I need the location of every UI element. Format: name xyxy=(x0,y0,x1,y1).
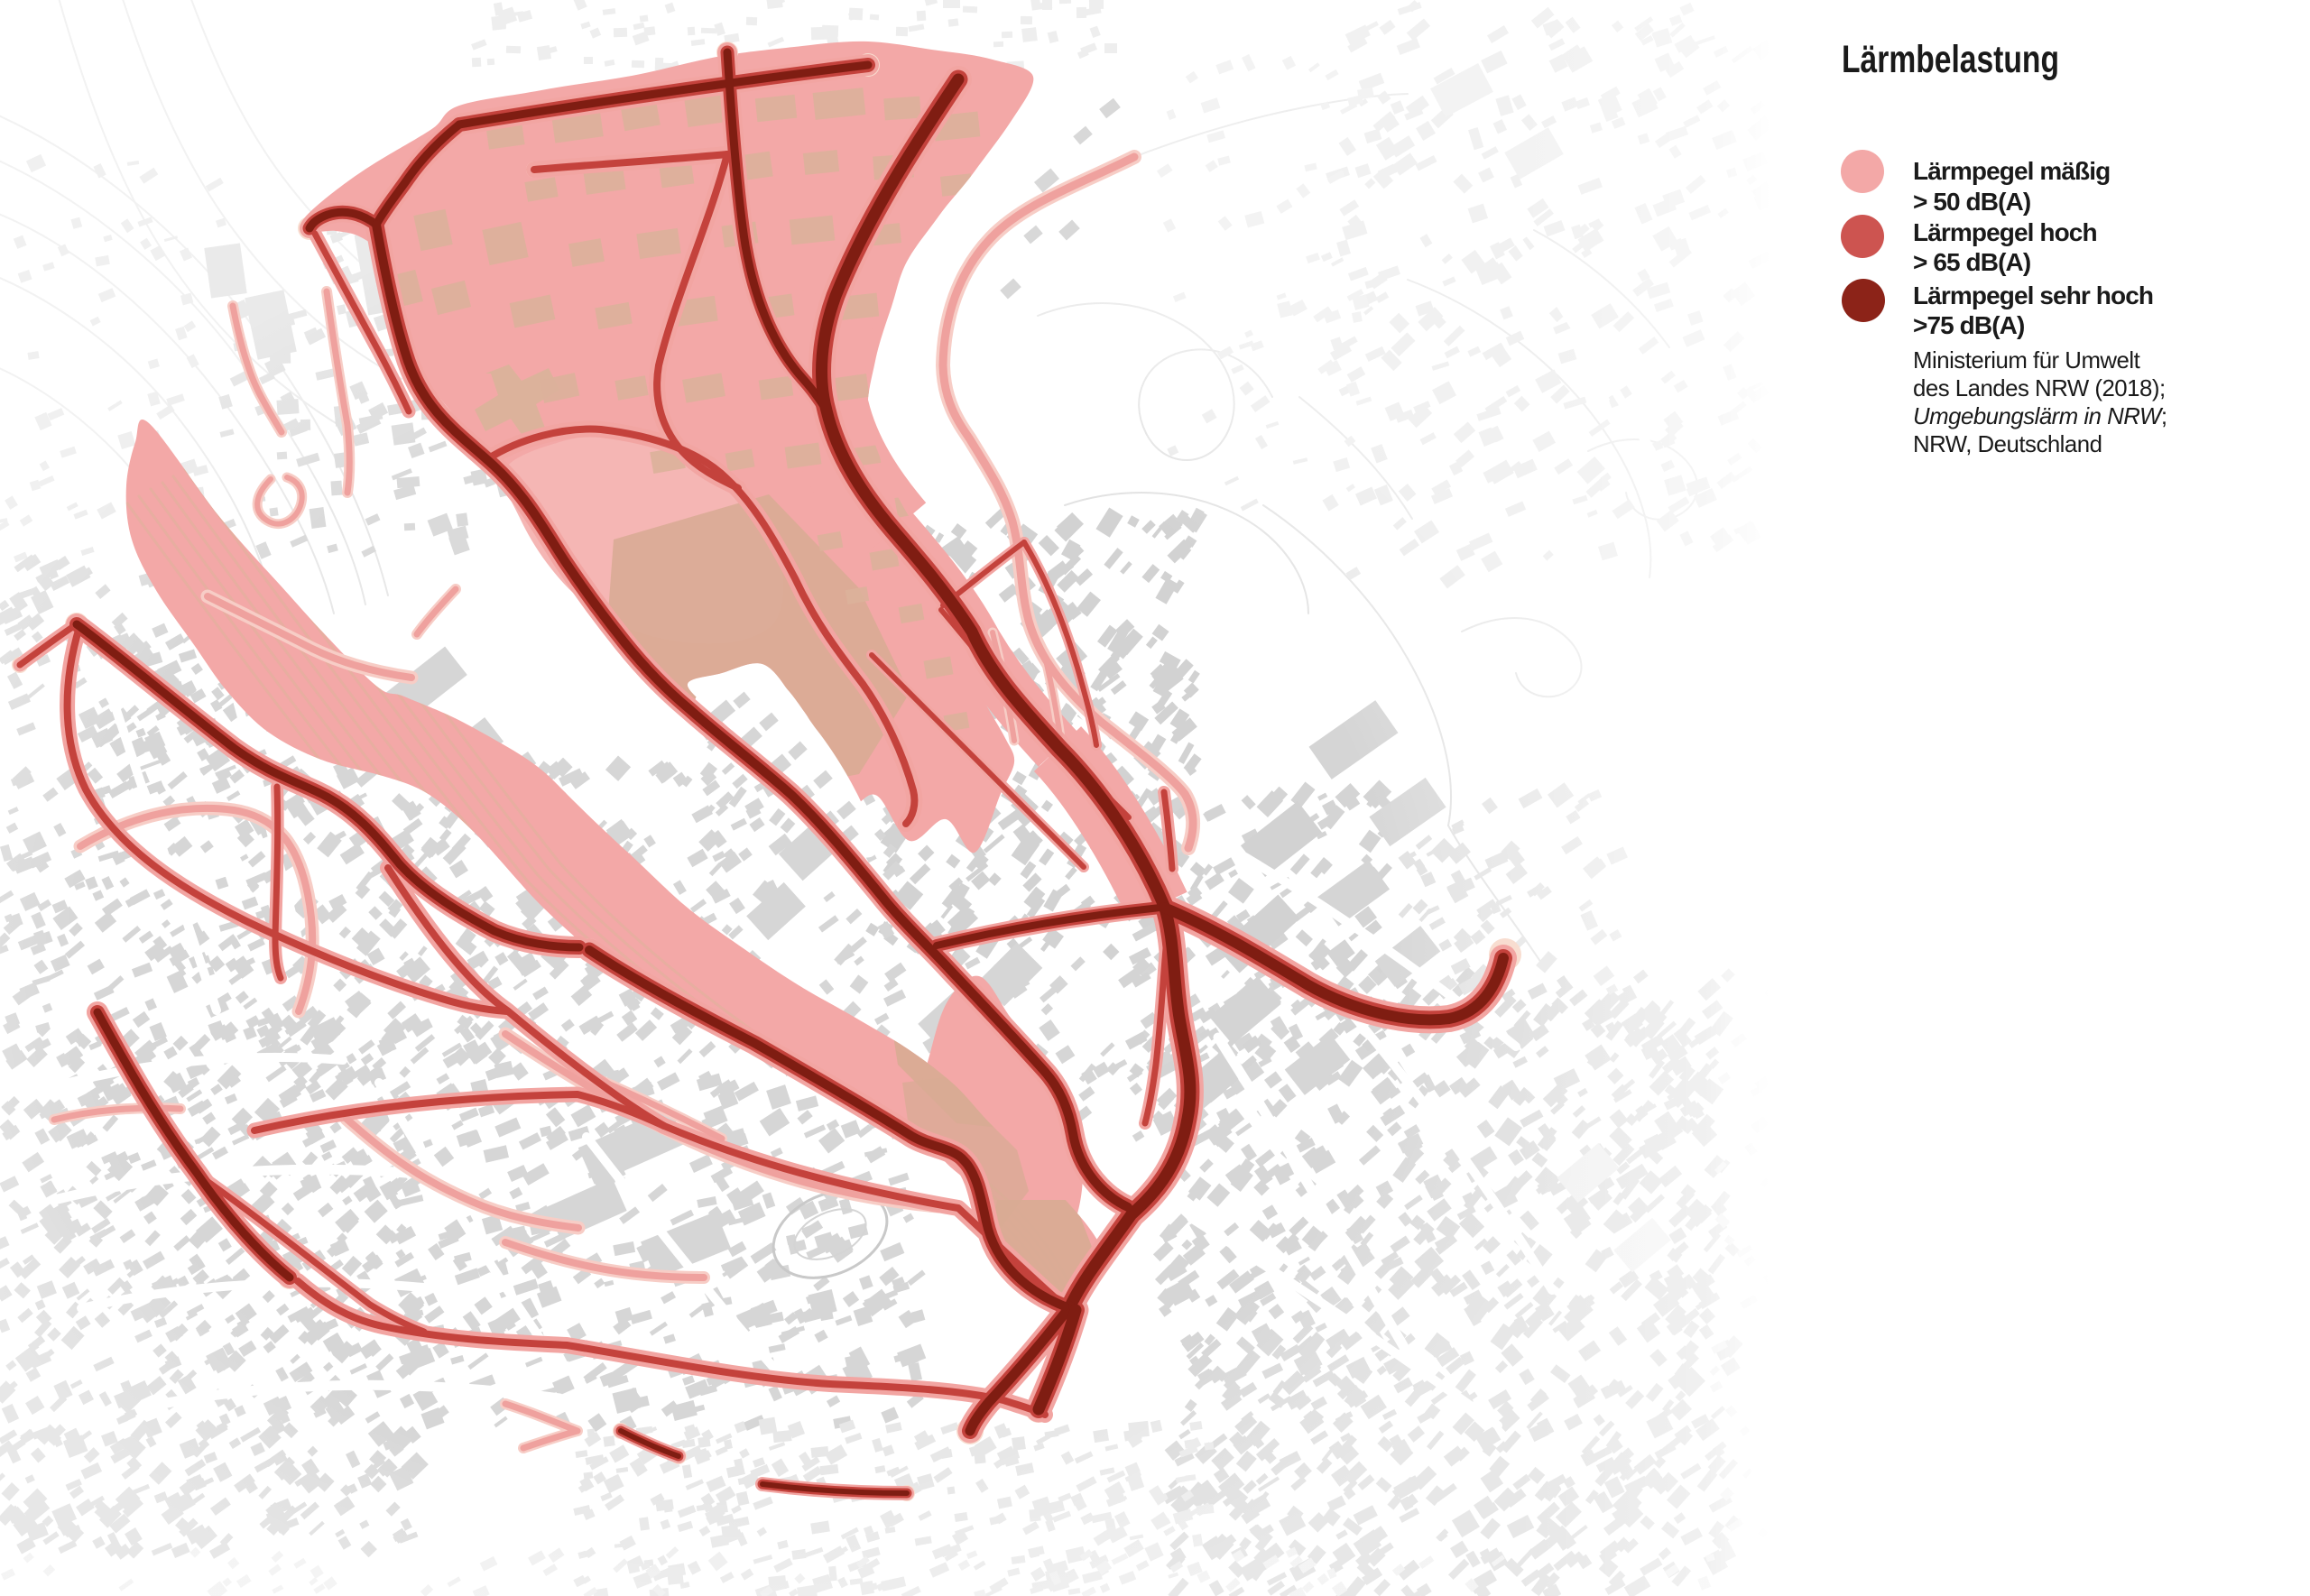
svg-text:NRW, Deutschland: NRW, Deutschland xyxy=(1913,432,2102,457)
svg-text:Lärmpegel mäßig: Lärmpegel mäßig xyxy=(1913,157,2110,185)
svg-text:Lärmpegel hoch: Lärmpegel hoch xyxy=(1913,218,2097,246)
svg-text:des Landes NRW (2018);: des Landes NRW (2018); xyxy=(1913,376,2166,401)
svg-text:Lärmpegel sehr hoch: Lärmpegel sehr hoch xyxy=(1913,281,2153,309)
svg-text:Lärmbelastung: Lärmbelastung xyxy=(1842,38,2059,81)
svg-text:> 65 dB(A): > 65 dB(A) xyxy=(1913,248,2030,276)
svg-text:Umgebungslärm in NRW;: Umgebungslärm in NRW; xyxy=(1913,404,2167,429)
svg-text:> 50 dB(A): > 50 dB(A) xyxy=(1913,188,2030,216)
svg-text:Ministerium für Umwelt: Ministerium für Umwelt xyxy=(1913,348,2140,374)
svg-text:>75 dB(A): >75 dB(A) xyxy=(1913,311,2024,339)
